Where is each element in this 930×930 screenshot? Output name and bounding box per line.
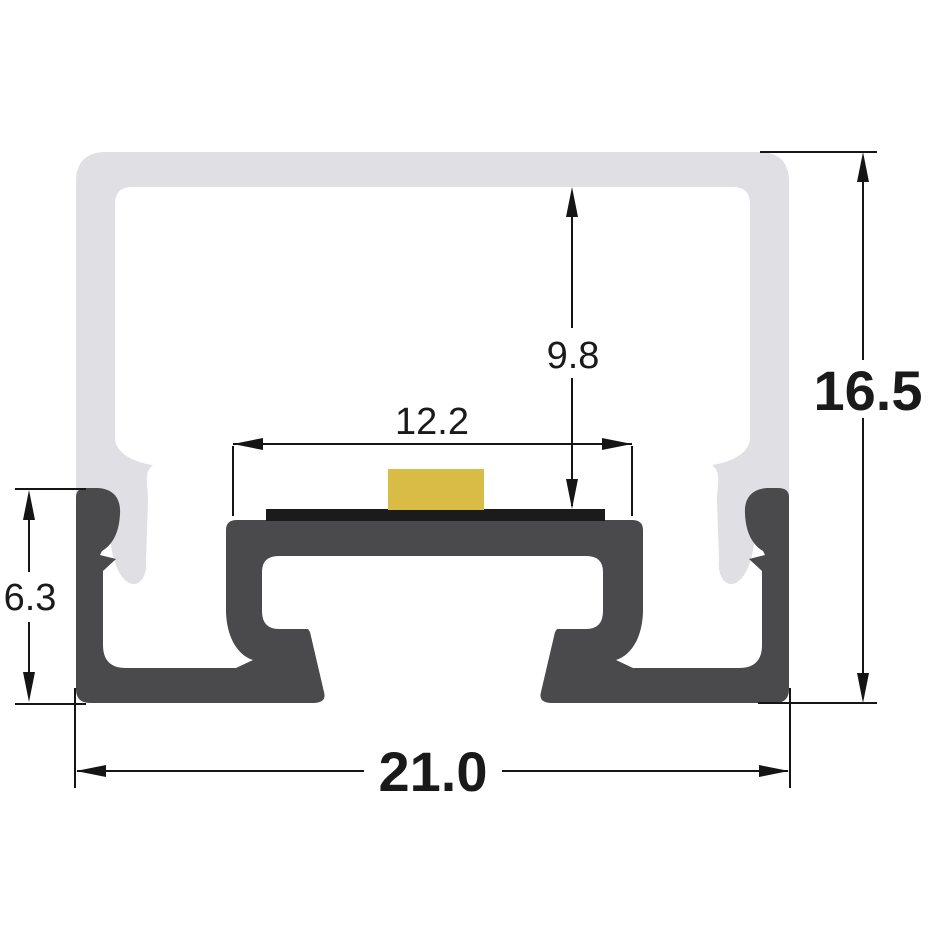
dimension-label-platform-width: 12.2 bbox=[395, 401, 469, 443]
dimension-label-overall-height: 16.5 bbox=[814, 359, 923, 422]
arrow-right-icon bbox=[602, 438, 632, 450]
arrow-down-icon bbox=[566, 479, 578, 509]
arrow-right-icon bbox=[759, 765, 789, 777]
arrow-left-icon bbox=[233, 438, 263, 450]
cross-section-drawing: 9.8 12.2 16.5 6 bbox=[0, 0, 930, 930]
dimension-label-overall-width: 21.0 bbox=[379, 740, 488, 803]
arrow-up-icon bbox=[566, 187, 578, 217]
arrow-down-icon bbox=[857, 673, 869, 703]
dimension-label-cavity-depth: 9.8 bbox=[547, 335, 600, 377]
arrow-up-icon bbox=[23, 490, 35, 520]
arrow-left-icon bbox=[76, 765, 106, 777]
led-chip bbox=[388, 469, 484, 510]
dimension-label-base-height: 6.3 bbox=[4, 577, 57, 619]
arrow-up-icon bbox=[857, 152, 869, 182]
dimension-6-3: 6.3 bbox=[2, 489, 86, 704]
pcb-strip bbox=[266, 509, 605, 521]
dimension-21-0: 21.0 bbox=[75, 688, 790, 803]
technical-drawing-canvas: 9.8 12.2 16.5 6 bbox=[0, 0, 930, 930]
dimension-9-8: 9.8 bbox=[536, 187, 610, 509]
arrow-down-icon bbox=[23, 672, 35, 702]
